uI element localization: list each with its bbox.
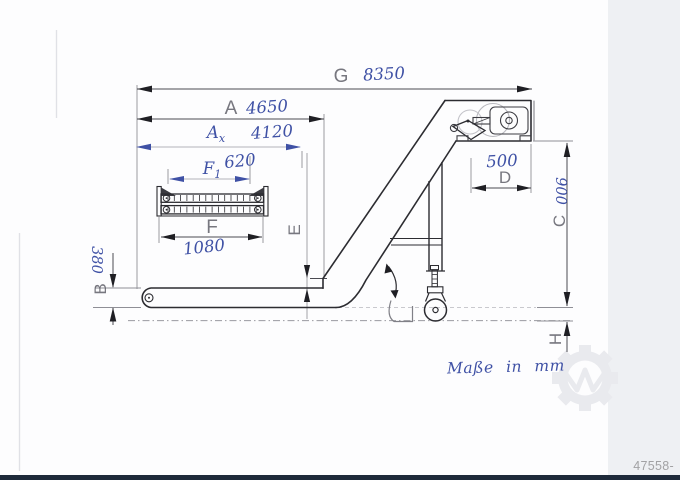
floor-line: [128, 308, 570, 321]
drive-motor-detail: [450, 104, 531, 142]
dim-a-value: 4650: [245, 96, 288, 118]
dim-ax-letter: Ax: [207, 123, 225, 145]
dimension-lines: [113, 89, 567, 352]
units-note: Maße in mm: [447, 356, 565, 377]
dim-f1-value: 620: [223, 150, 256, 172]
dim-b-letter: B: [91, 283, 111, 294]
listing-photo: G A F D B C E H 8350 4650 Ax 4120 F1 620…: [0, 0, 680, 480]
dim-b-value: 380: [88, 246, 104, 274]
belt-detail-view: [157, 187, 268, 217]
scan-edge-lines: [20, 30, 57, 471]
dim-c-value: 900: [552, 177, 568, 205]
dim-ax-value: 4120: [250, 121, 293, 143]
dim-a-letter: A: [225, 98, 238, 120]
support-legs: [390, 162, 446, 302]
dim-g-letter: G: [334, 66, 349, 88]
dim-c-letter: C: [550, 215, 570, 227]
dim-f1-letter: F1: [203, 159, 221, 181]
dim-e-letter: E: [285, 224, 305, 235]
dim-g-value: 8350: [363, 63, 406, 84]
dim-d-value: 500: [486, 151, 518, 172]
dim-h-letter: H: [546, 333, 566, 345]
dim-d-letter: D: [499, 168, 511, 188]
conveyor-outline: [142, 101, 534, 308]
footer-bar: [0, 475, 680, 480]
watermark-gear-icon: [552, 345, 618, 411]
